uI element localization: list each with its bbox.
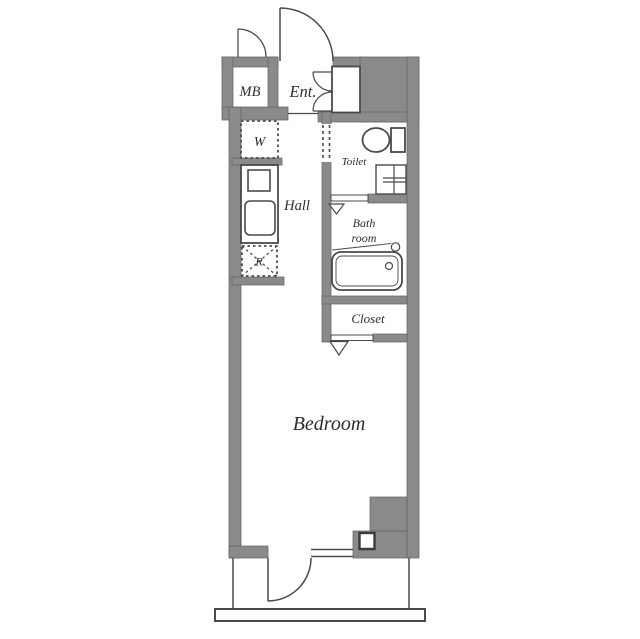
closet-folding-door-mark — [330, 342, 348, 356]
closet-label: Closet — [351, 311, 385, 326]
kitchen-top-bar — [232, 158, 282, 165]
washer-label: W — [254, 134, 267, 149]
entrance-door — [280, 8, 333, 61]
toilet-label: Toilet — [342, 156, 368, 168]
mb-left-wall — [222, 57, 233, 110]
pillar-upper — [370, 497, 407, 531]
bath-door-track — [331, 195, 368, 201]
bathroom-label-line2: room — [352, 231, 377, 245]
balcony-side-lines — [233, 558, 409, 609]
toilet-tank — [391, 128, 405, 152]
pipe-shaft — [360, 533, 375, 549]
closet-door-track — [331, 335, 373, 341]
refrigerator-label: R — [254, 255, 263, 269]
top-wall-right — [333, 57, 363, 67]
floor-plan: MB Ent. W Hall Toilet Bath room Closet R… — [0, 0, 640, 639]
bath-drain-circle — [391, 243, 399, 251]
kitchen-sink — [245, 201, 275, 235]
shoe-storage — [332, 67, 360, 113]
balcony-door — [268, 558, 311, 601]
walls — [222, 57, 419, 558]
kitchen-bottom-bar — [232, 277, 284, 285]
floor-plan-canvas: MB Ent. W Hall Toilet Bath room Closet R… — [0, 0, 640, 639]
balcony-rail — [215, 609, 425, 621]
hall-label: Hall — [283, 198, 310, 214]
bathroom-label-line1: Bath — [353, 216, 376, 230]
bedroom-bottom-wall — [229, 546, 268, 558]
closet-bottom-wall — [373, 334, 407, 342]
mb-entrance-divider-wall — [268, 57, 278, 113]
washroom-bath-wall — [368, 194, 407, 203]
mb-label: MB — [239, 84, 261, 100]
fixed-window-sill — [311, 550, 353, 557]
toilet-bowl — [363, 128, 390, 152]
bedroom-label: Bedroom — [293, 413, 366, 435]
left-outer-wall — [229, 107, 241, 558]
mb-door — [238, 29, 266, 57]
entrance-label: Ent. — [288, 82, 316, 101]
kitchen-stove — [248, 170, 270, 191]
right-outer-wall — [407, 57, 419, 558]
bathtub — [332, 252, 402, 290]
bath-closet-wall — [322, 296, 407, 304]
vanity-counter — [376, 165, 406, 194]
balcony — [215, 558, 425, 621]
